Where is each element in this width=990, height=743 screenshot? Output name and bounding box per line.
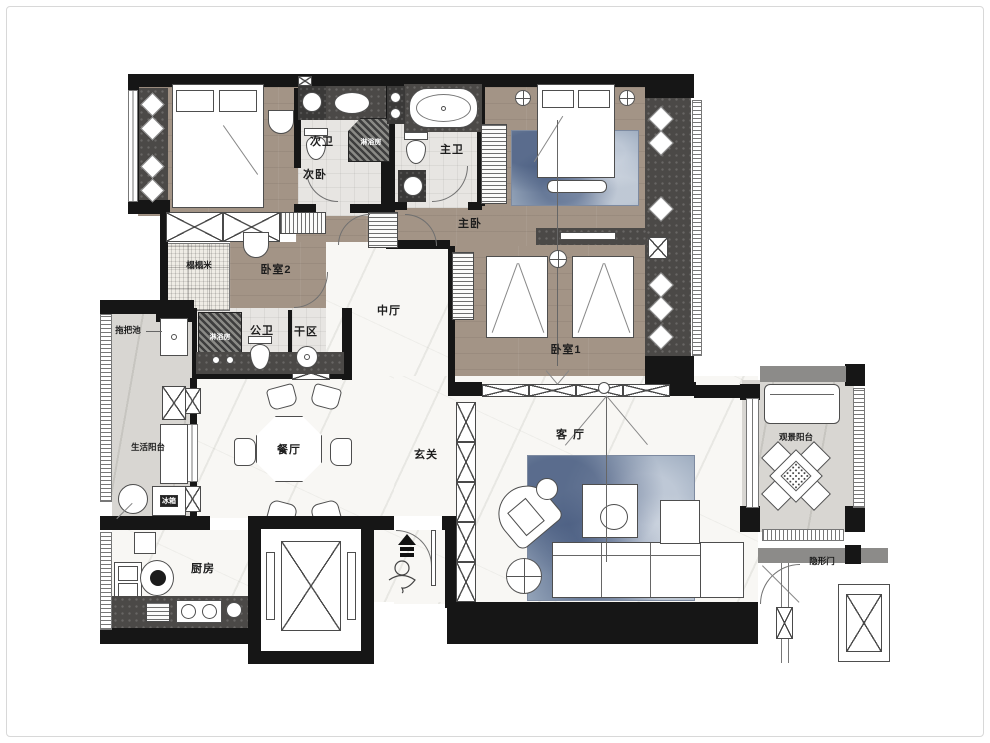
side-table xyxy=(536,478,558,500)
room-label-bedroom1: 卧室1 xyxy=(550,341,581,357)
wall xyxy=(740,506,760,532)
spotlight xyxy=(226,356,234,364)
bay-side-table xyxy=(648,237,668,259)
label-hidden-door: 隐形门 xyxy=(809,555,835,567)
wall xyxy=(100,628,252,644)
sink-bowl xyxy=(118,566,138,581)
window xyxy=(762,529,844,541)
window xyxy=(692,100,702,356)
prep-counter xyxy=(134,532,156,554)
room-label-kitchen: 厨房 xyxy=(191,560,215,576)
entry-door-leaf xyxy=(431,530,436,586)
laundry-cabinet xyxy=(160,424,188,484)
drain xyxy=(171,334,177,340)
stool-seat xyxy=(150,570,166,586)
room-label-middle-hall: 中厅 xyxy=(377,302,401,318)
bench-line xyxy=(770,394,834,395)
master-wardrobe xyxy=(481,124,507,204)
mop-bucket xyxy=(118,484,148,514)
wall xyxy=(645,356,694,384)
label-leader xyxy=(146,331,162,332)
sofa xyxy=(552,542,702,598)
elevator-car xyxy=(281,541,341,631)
sofa-chaise xyxy=(660,500,700,544)
single-bed xyxy=(486,256,548,338)
floor-lamp xyxy=(506,558,542,594)
shoe-cabinet xyxy=(456,402,476,442)
ceiling-light xyxy=(515,90,531,106)
room-label-second-bedroom: 次卧 xyxy=(303,166,327,182)
single-bed xyxy=(572,256,634,338)
room-label-foyer: 玄关 xyxy=(414,446,438,462)
room-label-master-bath: 主卫 xyxy=(440,141,464,157)
wall xyxy=(645,74,694,98)
ceiling-light xyxy=(549,250,567,268)
wall xyxy=(845,364,865,386)
entry-door-opening xyxy=(394,516,442,530)
basin xyxy=(390,92,401,103)
sofa-return xyxy=(700,542,744,598)
window xyxy=(128,90,138,202)
wall xyxy=(694,385,744,398)
hall-shelf xyxy=(368,212,398,248)
burner xyxy=(181,604,196,619)
bed-pillow xyxy=(542,90,574,108)
shower-room-label: 淋浴房 xyxy=(361,137,382,147)
dining-chair xyxy=(330,438,352,466)
wall xyxy=(447,602,758,644)
tub-drain xyxy=(441,106,446,111)
wall xyxy=(387,202,407,210)
wash-basin xyxy=(334,92,370,114)
wall xyxy=(448,382,482,396)
north-arrow-icon xyxy=(400,547,414,551)
bed-pillow xyxy=(219,90,257,112)
bed-bench xyxy=(547,180,607,193)
ceiling-light xyxy=(619,90,635,106)
elevator-rail xyxy=(266,552,275,620)
storage-column xyxy=(184,486,201,512)
pot xyxy=(226,602,242,618)
label-mop-pool: 拖把池 xyxy=(115,324,141,336)
wall xyxy=(845,506,865,532)
window xyxy=(853,388,865,508)
wall xyxy=(100,300,160,314)
wall xyxy=(845,545,861,564)
balcony-sliding-door xyxy=(746,398,759,508)
floor-plan: 淋浴房 淋浴房 冰箱 xyxy=(0,0,990,743)
wall xyxy=(670,382,696,396)
sliding-partition xyxy=(529,384,576,397)
axis-line xyxy=(606,396,607,562)
window xyxy=(100,532,112,630)
counter-grill xyxy=(146,602,170,622)
basin xyxy=(390,108,401,119)
room-label-view-balcony: 观景阳台 xyxy=(779,431,813,443)
exterior-shaft-core xyxy=(846,594,882,652)
elevator-rail xyxy=(347,552,356,620)
person-icon xyxy=(382,556,422,594)
wall xyxy=(288,310,292,354)
shoe-cabinet xyxy=(456,442,476,482)
bed-pillow xyxy=(176,90,214,112)
washing-machine xyxy=(302,92,322,112)
wall xyxy=(128,200,170,214)
bedroom1-wardrobe xyxy=(452,252,474,320)
room-label-living: 客厅 xyxy=(556,426,590,442)
fridge-label: 冰箱 xyxy=(160,495,178,507)
balcony-bench xyxy=(764,384,840,424)
sliding-partition xyxy=(623,384,670,397)
room-label-service-balcony: 生活阳台 xyxy=(131,441,165,453)
room-label-master-bedroom: 主卧 xyxy=(458,215,482,231)
room-label-public-bath: 公卫 xyxy=(250,322,274,338)
shoe-cabinet xyxy=(456,522,476,562)
room-label-second-bath: 次卫 xyxy=(310,133,334,149)
spotlight xyxy=(212,356,220,364)
shower-room-label: 淋浴房 xyxy=(210,332,231,342)
bedroom2-chair xyxy=(243,232,269,258)
wardrobe-cabinet xyxy=(166,212,223,242)
room-label-tatami: 榻榻米 xyxy=(186,259,212,271)
room-label-dry-area: 干区 xyxy=(294,323,318,339)
wall xyxy=(468,202,482,210)
axis-line xyxy=(557,120,558,366)
dresser-tray xyxy=(560,232,616,240)
shoe-cabinet xyxy=(456,482,476,522)
washing-machine xyxy=(403,176,423,196)
shelf-cabinet xyxy=(280,212,326,234)
table-decor xyxy=(600,504,628,530)
partition-pivot xyxy=(598,382,610,394)
balcony-parapet xyxy=(760,366,846,382)
sliding-partition xyxy=(482,384,529,397)
exterior-column-box xyxy=(776,607,793,639)
room-label-dining: 餐厅 xyxy=(277,441,301,457)
toilet-tank xyxy=(404,132,428,140)
wall-vent xyxy=(298,76,312,86)
storage-cabinet xyxy=(162,386,186,420)
dining-chair xyxy=(234,438,256,466)
shoe-cabinet xyxy=(456,562,476,602)
burner xyxy=(202,604,217,619)
north-arrow-icon xyxy=(398,534,416,545)
bay-seat-right xyxy=(645,96,691,358)
bed-pillow xyxy=(578,90,610,108)
basin-drain xyxy=(304,354,310,360)
storage-column xyxy=(184,388,201,414)
room-label-bedroom2: 卧室2 xyxy=(260,261,291,277)
window xyxy=(100,314,112,502)
